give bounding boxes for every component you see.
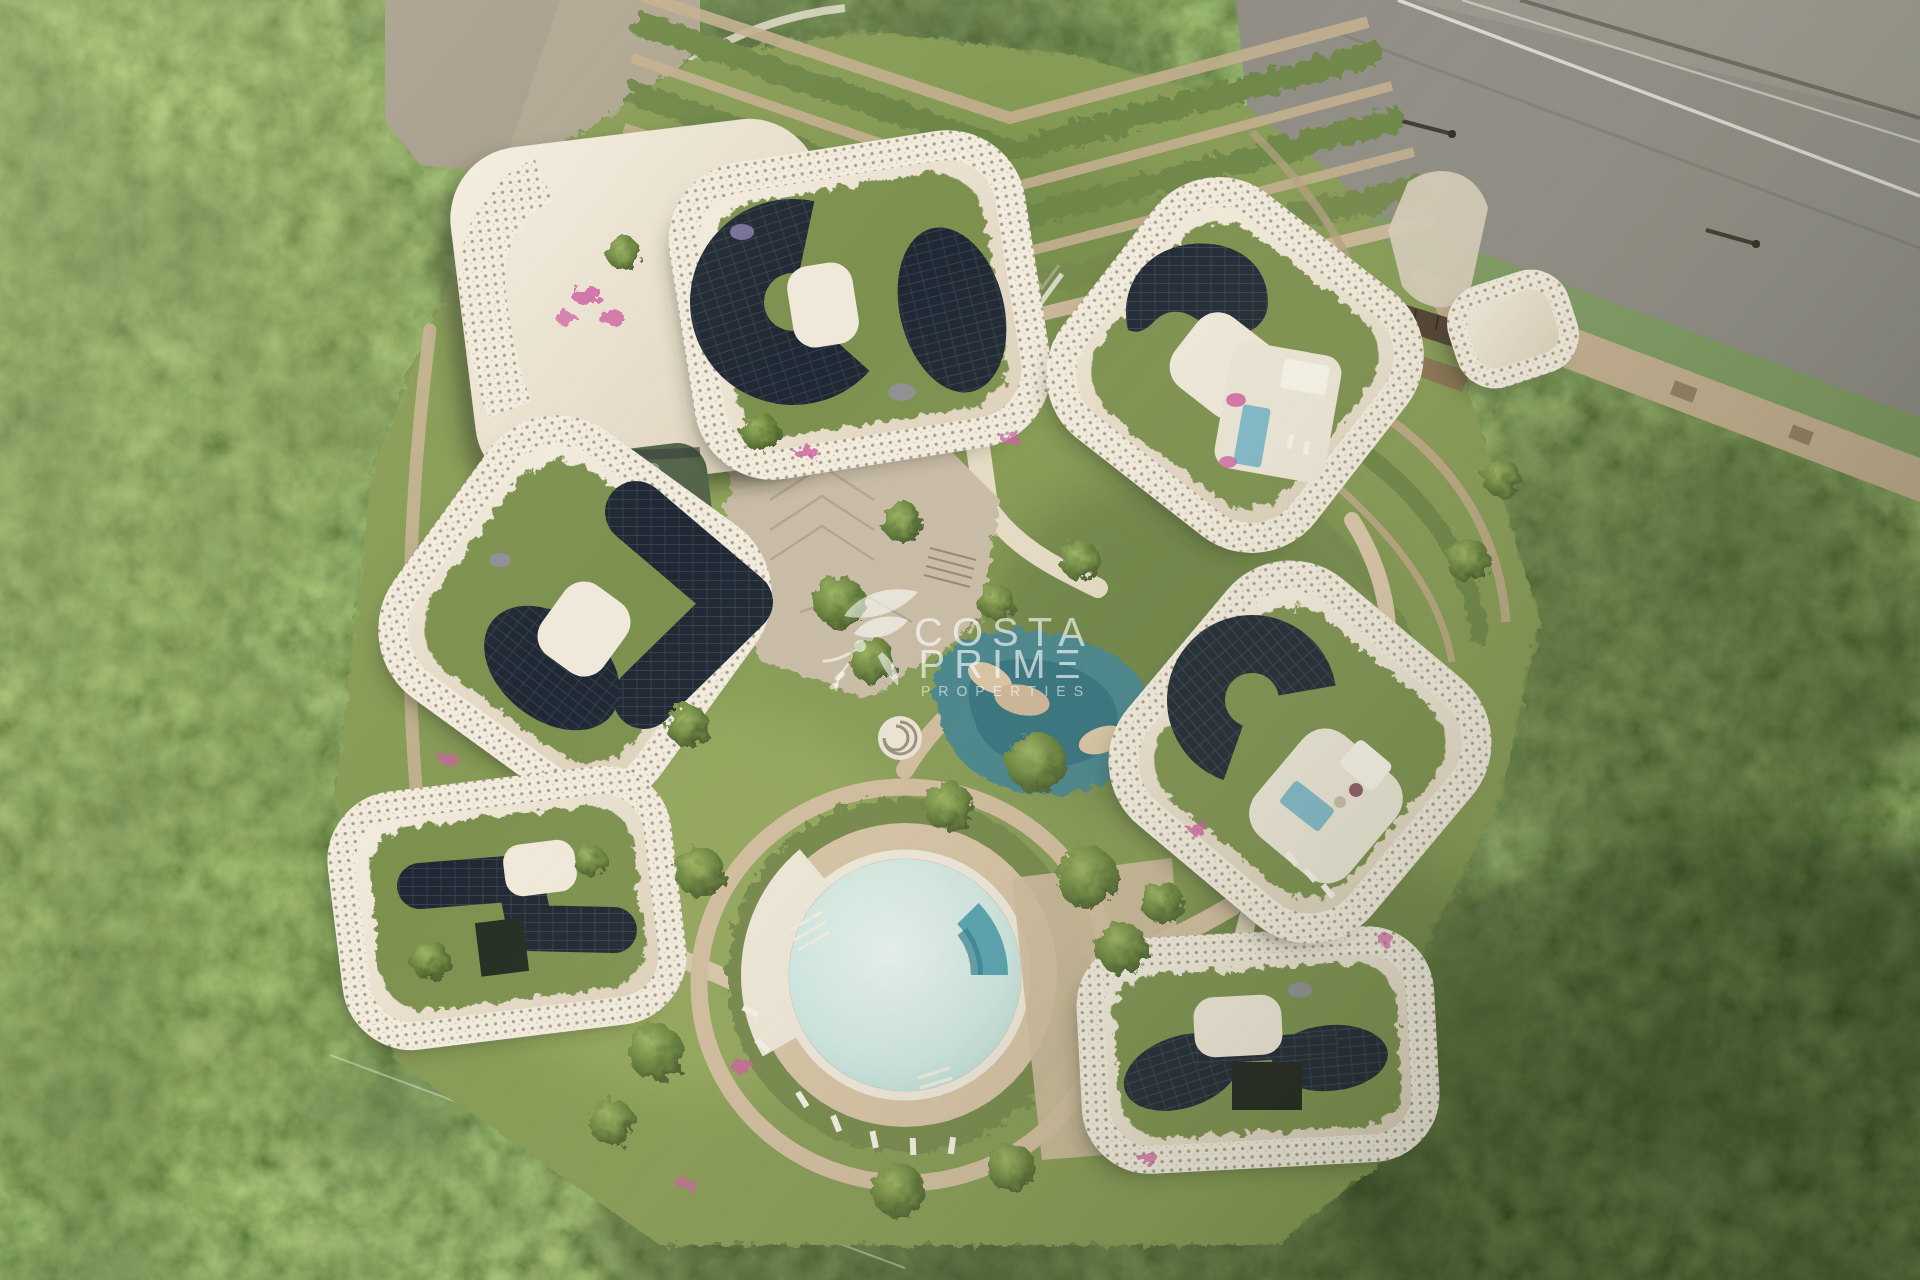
site-plan-svg: COSTA PRIMΞ PROPERTIES [0, 0, 1920, 1280]
watermark-line-properties: PROPERTIES [921, 683, 1091, 699]
watermark-line-prime: PRIMΞ [919, 642, 1090, 686]
aerial-render-viewport: COSTA PRIMΞ PROPERTIES [0, 0, 1920, 1280]
